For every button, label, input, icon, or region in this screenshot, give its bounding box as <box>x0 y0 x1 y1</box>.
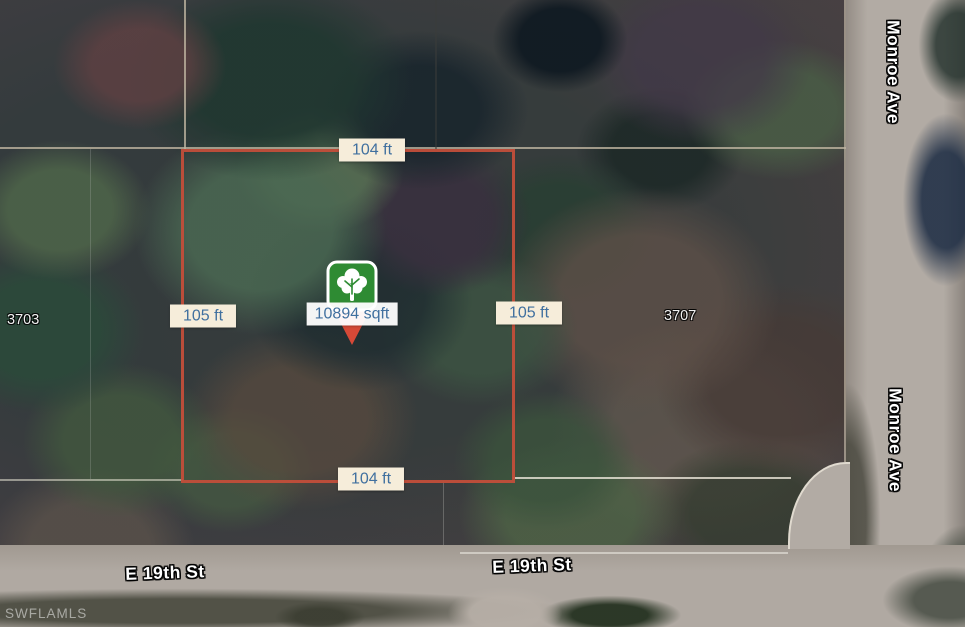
dimension-label-bottom: 104 ft <box>338 468 404 491</box>
parcel-line-mid-vertical <box>435 0 437 149</box>
parcel-number-3707: 3707 <box>664 308 696 324</box>
dimension-label-left: 105 ft <box>170 305 236 328</box>
area-label: 10894 sqft <box>307 303 398 326</box>
road-edge-line <box>460 552 788 554</box>
street-label-e-19th-st-west: E 19th St <box>125 561 205 585</box>
parcel-line-faint-left <box>90 149 91 479</box>
road-monroe-ave <box>846 0 965 627</box>
street-label-monroe-ave-north: Monroe Ave <box>883 20 904 124</box>
dimension-label-top: 104 ft <box>339 139 405 162</box>
parcel-line-south-left <box>0 479 183 481</box>
parcel-line-road-edge <box>844 0 846 462</box>
street-label-monroe-ave-south: Monroe Ave <box>885 388 906 492</box>
parcel-number-3703: 3703 <box>7 312 39 328</box>
parcel-line-west-vertical <box>184 0 186 149</box>
map-canvas[interactable]: 104 ft 105 ft 105 ft 104 ft <box>0 0 965 627</box>
dimension-label-right: 105 ft <box>496 302 562 325</box>
mls-watermark: SWFLAMLS <box>5 606 87 621</box>
road-e-19th-st <box>0 545 965 627</box>
street-label-e-19th-st-east: E 19th St <box>492 554 572 578</box>
parcel-line-faint-bottom <box>443 481 444 545</box>
parcel-line-south-right <box>513 477 791 479</box>
